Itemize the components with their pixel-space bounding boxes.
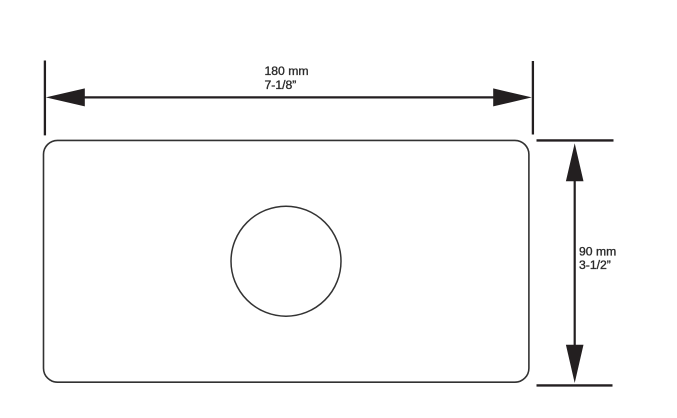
svg-text:180 mm: 180 mm [265, 64, 309, 78]
svg-text:90 mm: 90 mm [579, 245, 616, 259]
svg-text:3-1/2”: 3-1/2” [579, 258, 611, 272]
svg-text:7-1/8”: 7-1/8” [265, 78, 297, 92]
